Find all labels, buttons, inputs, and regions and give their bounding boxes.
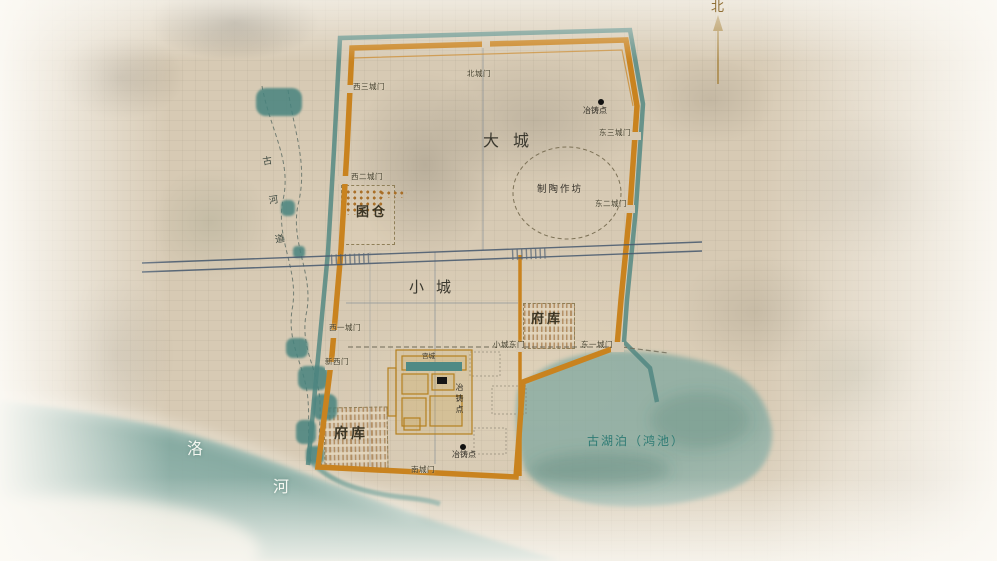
great-city-label: 大城 bbox=[483, 133, 543, 149]
casting-site-center-marker bbox=[437, 377, 447, 384]
casting-site-ne-marker bbox=[598, 99, 604, 105]
gate-label-east-3: 东三城门 bbox=[599, 129, 631, 137]
luo-river-char-2: 河 bbox=[273, 479, 289, 495]
railway bbox=[142, 242, 702, 272]
lake-shade-1 bbox=[530, 452, 670, 488]
gate-label-west-3: 西三城门 bbox=[353, 83, 385, 91]
gate-label-south: 南城门 bbox=[411, 466, 435, 474]
map-canvas: 北 大城 小城 北城门 西三城门 西二城门 西一城门 新西门 南城门 小城东门 … bbox=[0, 0, 997, 561]
granary-label: 囷仓 bbox=[356, 206, 388, 219]
casting-site-center-label: 冶铸点 bbox=[455, 383, 463, 416]
gate-label-new-west: 新西门 bbox=[325, 358, 349, 366]
treasury-east-label: 府库 bbox=[531, 313, 563, 326]
small-city-label: 小城 bbox=[409, 280, 463, 295]
gate-label-west-1: 西一城门 bbox=[329, 324, 361, 332]
north-arrow-icon bbox=[713, 15, 723, 84]
palace-label: 宫城 bbox=[422, 353, 435, 360]
casting-site-ne-label: 冶铸点 bbox=[583, 107, 607, 115]
gate-label-east-2: 东二城门 bbox=[595, 200, 627, 208]
pottery-workshop-label: 制陶作坊 bbox=[537, 185, 583, 195]
compass-north-label: 北 bbox=[711, 1, 724, 14]
lake-label: 古湖泊（鸿池） bbox=[587, 435, 685, 447]
gate-label-small-city-east: 小城东门 bbox=[493, 341, 525, 349]
luo-river-char-1: 洛 bbox=[187, 441, 203, 457]
casting-site-south-label: 冶铸点 bbox=[452, 451, 476, 459]
gate-label-east-1: 东一城门 bbox=[581, 341, 613, 349]
gate-label-north: 北城门 bbox=[467, 70, 491, 78]
treasury-south-label: 府库 bbox=[334, 427, 368, 441]
inner-wall-line bbox=[352, 50, 633, 106]
map-linework bbox=[0, 0, 997, 561]
gate-label-west-2: 西二城门 bbox=[351, 173, 383, 181]
